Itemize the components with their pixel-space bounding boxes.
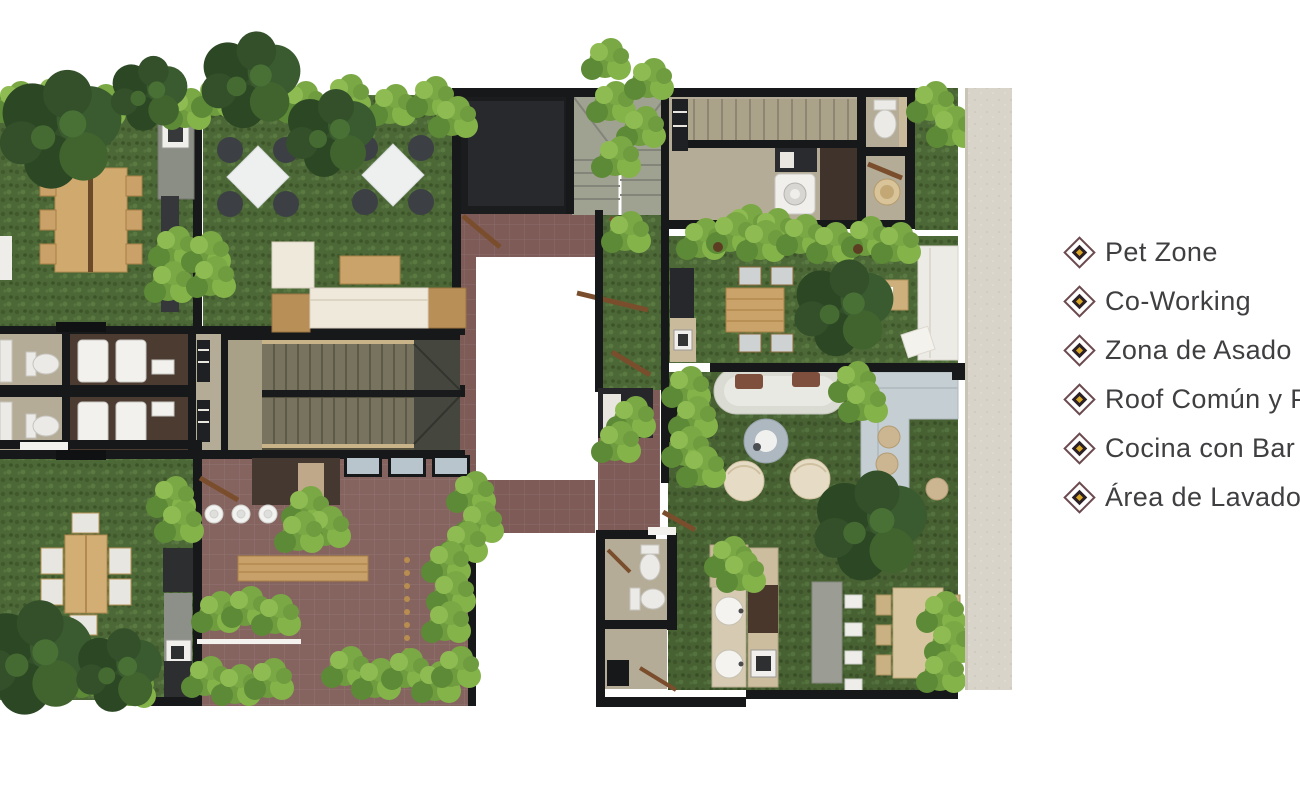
bbq-counter	[670, 268, 696, 362]
legend-label: Área de Lavado	[1105, 482, 1300, 513]
diamond-bullet-icon	[1063, 236, 1096, 269]
round-stools	[205, 505, 277, 523]
legend-item-cocina-con-bar: Cocina con Bar	[1068, 434, 1300, 463]
round-coffee-table	[744, 419, 788, 463]
legend-label: Cocina con Bar	[1105, 433, 1295, 464]
diamond-bullet-icon	[1063, 481, 1096, 514]
legend-item-co-working: Co-Working	[1068, 287, 1300, 316]
curved-sofa	[714, 368, 846, 414]
legend-label: Co-Working	[1105, 286, 1251, 317]
legend-label: Pet Zone	[1105, 237, 1218, 268]
elevator-shaft	[458, 92, 572, 214]
legend-label: Zona de Asado	[1105, 335, 1292, 366]
legend-item-zona-de-asado: Zona de Asado	[1068, 336, 1300, 365]
amenities-legend: Pet Zone Co-Working Zona de Asado Roof C…	[1068, 238, 1300, 512]
skylight-void-upper	[476, 257, 595, 480]
diamond-bullet-icon	[1063, 334, 1096, 367]
washing-machine	[775, 174, 815, 214]
legend-item-pet-zone: Pet Zone	[1068, 238, 1300, 267]
glass-skylights	[344, 455, 470, 477]
diamond-bullet-icon	[1063, 432, 1096, 465]
stone-island	[812, 582, 842, 683]
exterior-wall	[965, 88, 1012, 690]
screenshot-stage: Pet Zone Co-Working Zona de Asado Roof C…	[0, 0, 1300, 800]
staircase-central	[228, 332, 460, 458]
legend-label: Roof Común y P	[1105, 384, 1300, 415]
planter-edge	[197, 639, 301, 644]
legend-item-roof-comun: Roof Común y P	[1068, 385, 1300, 414]
wood-bench	[238, 556, 368, 581]
diamond-bullet-icon	[1063, 383, 1096, 416]
diamond-bullet-icon	[1063, 285, 1096, 318]
legend-item-area-de-lavado: Área de Lavado	[1068, 483, 1300, 512]
skylight-void-lower	[476, 533, 595, 706]
